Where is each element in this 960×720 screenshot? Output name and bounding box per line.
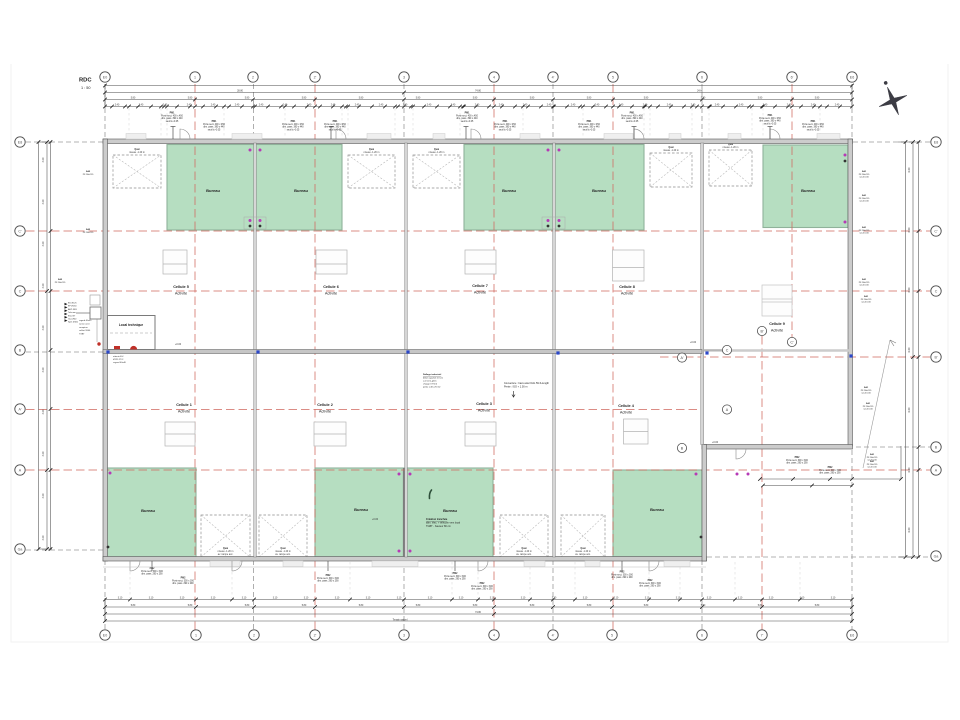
- svg-text:5.80: 5.80: [587, 98, 592, 100]
- svg-text:5.80: 5.80: [302, 605, 307, 607]
- svg-text:E0: E0: [103, 75, 107, 79]
- svg-text:dim. pass. 390 x 440: dim. pass. 390 x 440: [802, 127, 824, 129]
- svg-text:2: 2: [252, 75, 254, 79]
- svg-text:2.40: 2.40: [163, 105, 168, 107]
- svg-text:av. rampe acc.: av. rampe acc.: [575, 553, 591, 556]
- svg-text:PF 90x215: PF 90x215: [859, 230, 870, 232]
- svg-text:5.80: 5.80: [131, 98, 136, 100]
- svg-text:E6: E6: [850, 75, 854, 79]
- svg-text:4': 4': [552, 633, 555, 637]
- svg-text:3.10: 3.10: [397, 598, 402, 600]
- svg-text:6': 6': [791, 75, 794, 79]
- svg-text:28.80: 28.80: [237, 91, 243, 93]
- svg-text:C: C: [935, 289, 938, 293]
- svg-text:seuil à -0.05: seuil à -0.05: [626, 121, 639, 123]
- svg-text:dim. pass. 290 x 290: dim. pass. 290 x 290: [141, 574, 163, 576]
- svg-text:dim. pass. 390 x 440: dim. pass. 390 x 440: [203, 127, 225, 129]
- svg-text:2': 2': [314, 75, 317, 79]
- svg-text:5.80: 5.80: [302, 98, 307, 100]
- svg-text:dim. pass. 290 x 290: dim. pass. 290 x 290: [786, 463, 808, 465]
- svg-text:5.80: 5.80: [245, 605, 250, 607]
- svg-text:6.00: 6.00: [908, 227, 911, 232]
- svg-text:B': B': [760, 330, 763, 334]
- svg-text:C': C': [934, 229, 938, 233]
- svg-text:PF 90x215: PF 90x215: [867, 464, 878, 466]
- svg-text:PF 90x215: PF 90x215: [867, 457, 878, 459]
- svg-text:PM1: PM1: [291, 121, 296, 123]
- svg-text:2.40: 2.40: [451, 105, 456, 107]
- svg-text:5.80: 5.80: [644, 98, 649, 100]
- svg-text:PM1: PM1: [768, 115, 773, 117]
- svg-text:2.40: 2.40: [619, 105, 624, 107]
- svg-text:1 : 50: 1 : 50: [81, 86, 91, 90]
- svg-text:4.20: 4.20: [42, 283, 45, 288]
- svg-text:5.80: 5.80: [530, 605, 535, 607]
- svg-text:béton quartzé 13 cm: béton quartzé 13 cm: [423, 376, 443, 379]
- svg-text:seuil à -0.05: seuil à -0.05: [807, 129, 820, 131]
- svg-text:6.00: 6.00: [908, 527, 911, 532]
- svg-text:charge 3 T/m2: charge 3 T/m2: [423, 382, 438, 385]
- svg-text:74.80: 74.80: [475, 612, 481, 614]
- svg-text:Cellule 4: Cellule 4: [618, 404, 635, 408]
- svg-text:dim. pass. 390 x 440: dim. pass. 390 x 440: [282, 127, 304, 129]
- svg-text:5.80: 5.80: [701, 605, 706, 607]
- svg-text:Ga: Ga: [934, 554, 939, 558]
- svg-text:dim. pass. 290 x 290: dim. pass. 290 x 290: [819, 473, 841, 475]
- svg-text:PM1: PM1: [333, 121, 338, 123]
- svg-text:2.40: 2.40: [595, 105, 600, 107]
- svg-text:Bureau: Bureau: [650, 507, 664, 512]
- svg-text:5.80: 5.80: [473, 98, 478, 100]
- svg-text:2.40: 2.40: [739, 105, 744, 107]
- svg-text:av. rampe acc.: av. rampe acc.: [218, 553, 234, 556]
- svg-text:2.40: 2.40: [283, 105, 288, 107]
- svg-text:2.40: 2.40: [571, 105, 576, 107]
- svg-text:3.10: 3.10: [707, 598, 712, 600]
- svg-text:Porte sect. 400 x 450: Porte sect. 400 x 450: [759, 117, 781, 120]
- svg-text:4.20: 4.20: [42, 493, 45, 498]
- svg-text:Pente : ISO + 1.00 m: Pente : ISO + 1.00 m: [504, 386, 527, 389]
- svg-text:PM1: PM1: [170, 113, 175, 115]
- svg-text:5.80: 5.80: [416, 98, 421, 100]
- svg-text:5.80: 5.80: [587, 605, 592, 607]
- svg-text:Porte sect. 400 x 450: Porte sect. 400 x 450: [494, 123, 516, 126]
- svg-text:5.80: 5.80: [416, 605, 421, 607]
- svg-text:PF 90x215: PF 90x215: [861, 390, 872, 392]
- svg-text:seuil à -0.05: seuil à -0.05: [287, 129, 300, 131]
- svg-text:Porte sect. 300 x 300: Porte sect. 300 x 300: [141, 570, 163, 573]
- svg-text:Activité: Activité: [620, 411, 632, 415]
- svg-text:2.40: 2.40: [811, 105, 816, 107]
- svg-text:Porte sect. 300 x 300: Porte sect. 300 x 300: [317, 577, 339, 580]
- svg-text:seuil 0.00: seuil 0.00: [867, 467, 877, 469]
- svg-text:3.10: 3.10: [428, 598, 433, 600]
- svg-text:AEP Ø63: AEP Ø63: [68, 308, 77, 311]
- svg-text:4: 4: [493, 633, 495, 637]
- svg-text:4.20: 4.20: [42, 241, 45, 246]
- svg-text:Activité: Activité: [175, 292, 187, 296]
- svg-text:Cellule 9: Cellule 9: [769, 322, 785, 326]
- svg-text:2.40: 2.40: [691, 105, 696, 107]
- svg-text:Activité: Activité: [319, 410, 331, 414]
- svg-text:dim. pass. 390 x 440: dim. pass. 390 x 440: [161, 118, 183, 120]
- svg-text:Elec BT: Elec BT: [68, 315, 76, 317]
- svg-text:3.10: 3.10: [118, 598, 123, 600]
- svg-text:3: 3: [403, 633, 405, 637]
- svg-text:Bureau: Bureau: [801, 188, 815, 193]
- svg-text:Porte sect. 400 x 450: Porte sect. 400 x 450: [578, 123, 600, 126]
- svg-text:2.40: 2.40: [379, 105, 384, 107]
- svg-text:PM2: PM2: [326, 575, 331, 577]
- svg-text:2.40: 2.40: [235, 105, 240, 107]
- svg-text:3.10: 3.10: [149, 598, 154, 600]
- svg-text:3.10: 3.10: [645, 598, 650, 600]
- svg-text:Local technique: Local technique: [119, 323, 143, 327]
- svg-text:7': 7': [761, 633, 764, 637]
- svg-text:3: 3: [403, 75, 405, 79]
- svg-text:dim. pass. 290 x 290: dim. pass. 290 x 290: [611, 577, 633, 579]
- svg-text:C: C: [19, 289, 22, 293]
- svg-text:3.10: 3.10: [366, 598, 371, 600]
- svg-text:2.40: 2.40: [523, 105, 528, 107]
- svg-text:niveau -1.20 m: niveau -1.20 m: [129, 151, 145, 154]
- svg-text:Porte sect. 300 x 300: Porte sect. 300 x 300: [786, 459, 808, 462]
- svg-text:Activité: Activité: [478, 409, 490, 413]
- svg-text:2.40: 2.40: [763, 105, 768, 107]
- svg-text:Porte sect. 300 x 300: Porte sect. 300 x 300: [611, 573, 633, 576]
- svg-text:PM2: PM2: [150, 568, 155, 570]
- svg-text:C': C': [790, 341, 794, 345]
- svg-text:5.80: 5.80: [359, 605, 364, 607]
- svg-text:Porte sect. 300 x 300: Porte sect. 300 x 300: [471, 585, 493, 588]
- svg-text:Ø125 PVC: Ø125 PVC: [113, 359, 124, 361]
- svg-text:E0: E0: [103, 633, 107, 637]
- svg-text:E8: E8: [18, 140, 22, 144]
- svg-text:Porte sect. 300 x 300: Porte sect. 300 x 300: [639, 582, 661, 585]
- svg-text:Activité: Activité: [621, 292, 633, 296]
- svg-text:compteur: compteur: [79, 326, 88, 329]
- svg-text:Bureau: Bureau: [141, 508, 155, 513]
- svg-text:5.80: 5.80: [815, 98, 820, 100]
- svg-text:3.10: 3.10: [459, 598, 464, 600]
- svg-text:A': A': [18, 407, 21, 411]
- svg-text:3.10: 3.10: [583, 598, 588, 600]
- svg-text:C': C': [18, 229, 22, 233]
- svg-text:Cellule 1: Cellule 1: [176, 403, 192, 407]
- svg-text:seuil à -0.05: seuil à -0.05: [764, 123, 777, 125]
- svg-text:E8: E8: [934, 140, 938, 144]
- svg-text:2.40: 2.40: [715, 105, 720, 107]
- svg-text:niveau -1.20 m: niveau -1.20 m: [723, 146, 739, 149]
- svg-text:niveau -1.20 m: niveau -1.20 m: [663, 149, 679, 152]
- svg-text:4.20: 4.20: [42, 367, 45, 372]
- svg-text:seuil 0.00: seuil 0.00: [859, 285, 869, 287]
- svg-text:dim. pass. 390 x 440: dim. pass. 390 x 440: [759, 121, 781, 123]
- svg-text:PF 90x215: PF 90x215: [859, 174, 870, 176]
- svg-text:niveau -1.20 m: niveau -1.20 m: [364, 151, 380, 154]
- svg-text:2.40: 2.40: [115, 105, 120, 107]
- svg-text:seuil à -0.05: seuil à -0.05: [499, 129, 512, 131]
- svg-text:5.80: 5.80: [815, 605, 820, 607]
- svg-text:dim. pass. 390 x 440: dim. pass. 390 x 440: [324, 127, 346, 129]
- svg-text:5.80: 5.80: [530, 98, 535, 100]
- svg-text:regard 40x40: regard 40x40: [113, 361, 127, 364]
- svg-text:3.10: 3.10: [676, 598, 681, 600]
- svg-text:seuil à -0.05: seuil à -0.05: [461, 121, 474, 123]
- svg-text:6.00: 6.00: [908, 287, 911, 292]
- svg-text:dim. pass. 290 x 290: dim. pass. 290 x 290: [639, 586, 661, 588]
- svg-text:2.40: 2.40: [835, 105, 840, 107]
- svg-text:dim. pass. 390 x 440: dim. pass. 390 x 440: [494, 127, 516, 129]
- svg-text:3.10: 3.10: [211, 598, 216, 600]
- svg-text:Porte sect. 400 x 450: Porte sect. 400 x 450: [456, 114, 478, 117]
- svg-text:PM2: PM2: [828, 467, 833, 469]
- svg-text:2.40: 2.40: [547, 105, 552, 107]
- svg-text:PM2: PM2: [620, 572, 625, 574]
- svg-text:Activité: Activité: [325, 292, 337, 296]
- svg-text:2.40: 2.40: [187, 105, 192, 107]
- svg-text:E6: E6: [850, 633, 854, 637]
- svg-text:joints sclés 25 m2: joints sclés 25 m2: [422, 385, 441, 388]
- svg-text:2': 2': [314, 633, 317, 637]
- svg-text:5.80: 5.80: [758, 98, 763, 100]
- svg-text:3.10: 3.10: [490, 598, 495, 600]
- svg-text:PF 90x215: PF 90x215: [859, 198, 870, 200]
- svg-text:seuil à -0.05: seuil à -0.05: [329, 129, 342, 131]
- svg-text:PF 90x215: PF 90x215: [859, 282, 870, 284]
- svg-text:1: 1: [195, 633, 197, 637]
- svg-text:3.10: 3.10: [521, 598, 526, 600]
- svg-text:2.40: 2.40: [403, 105, 408, 107]
- svg-text:vanne arret: vanne arret: [79, 322, 90, 325]
- svg-text:seuil à -0.05: seuil à -0.05: [166, 121, 179, 123]
- svg-text:attente EU: attente EU: [113, 355, 124, 358]
- svg-text:2.40: 2.40: [355, 105, 360, 107]
- svg-text:PM2: PM2: [795, 457, 800, 459]
- svg-text:4.20: 4.20: [42, 409, 45, 414]
- svg-text:Bureau: Bureau: [294, 188, 308, 193]
- svg-text:2.40: 2.40: [475, 105, 480, 107]
- svg-text:dim. pass. 290 x 290: dim. pass. 290 x 290: [172, 583, 194, 585]
- svg-text:Cellule 7: Cellule 7: [472, 284, 488, 288]
- svg-text:Dallage industriel: Dallage industriel: [423, 373, 442, 376]
- svg-text:seuil à -0.05: seuil à -0.05: [208, 129, 221, 131]
- svg-text:Activité: Activité: [771, 329, 783, 333]
- svg-text:Porte sect. 300 x 300: Porte sect. 300 x 300: [444, 575, 466, 578]
- svg-text:TGBT - hauteur 80 cm: TGBT - hauteur 80 cm: [426, 525, 451, 528]
- svg-text:5: 5: [612, 75, 614, 79]
- svg-text:av. rampe acc.: av. rampe acc.: [516, 553, 532, 556]
- svg-text:3.10: 3.10: [614, 598, 619, 600]
- svg-text:Cellule 6: Cellule 6: [323, 285, 339, 289]
- svg-text:3.10: 3.10: [769, 598, 774, 600]
- svg-text:6.00: 6.00: [908, 467, 911, 472]
- svg-text:PM1: PM1: [587, 121, 592, 123]
- svg-text:RDC: RDC: [79, 78, 92, 84]
- svg-text:3.10: 3.10: [552, 598, 557, 600]
- svg-text:4: 4: [493, 75, 495, 79]
- svg-text:Cellule 2: Cellule 2: [317, 403, 333, 407]
- svg-text:PM1: PM1: [630, 113, 635, 115]
- svg-text:2: 2: [253, 633, 255, 637]
- svg-text:B': B': [934, 355, 937, 359]
- svg-text:6.00: 6.00: [908, 167, 911, 172]
- svg-text:dim. pass. 290 x 290: dim. pass. 290 x 290: [317, 581, 339, 583]
- svg-text:4.20: 4.20: [42, 199, 45, 204]
- svg-text:2.40: 2.40: [667, 105, 672, 107]
- svg-text:dim. pass. 390 x 440: dim. pass. 390 x 440: [456, 118, 478, 120]
- svg-text:PM1: PM1: [811, 121, 816, 123]
- svg-text:Cellule 8: Cellule 8: [619, 285, 635, 289]
- svg-text:PM1: PM1: [503, 121, 508, 123]
- svg-text:PM1: PM1: [212, 121, 217, 123]
- svg-text:Ga: Ga: [18, 547, 23, 551]
- svg-text:seuil à -0.05: seuil à -0.05: [583, 129, 596, 131]
- svg-text:seuil 0.00: seuil 0.00: [859, 201, 869, 203]
- svg-text:6: 6: [701, 633, 703, 637]
- svg-text:PM2: PM2: [480, 583, 485, 585]
- svg-text:Bureau: Bureau: [502, 188, 516, 193]
- svg-text:seuil 0.00: seuil 0.00: [861, 393, 871, 395]
- svg-text:4.20: 4.20: [42, 157, 45, 162]
- svg-text:dim. pass. 390 x 440: dim. pass. 390 x 440: [621, 118, 643, 120]
- svg-text:Porte sect. 400 x 450: Porte sect. 400 x 450: [161, 114, 183, 117]
- svg-text:regard 40x40: regard 40x40: [79, 319, 92, 322]
- svg-text:5.80: 5.80: [131, 605, 136, 607]
- svg-text:3.10: 3.10: [800, 598, 805, 600]
- svg-text:A': A': [680, 356, 683, 360]
- svg-text:EP Ø160: EP Ø160: [68, 306, 77, 308]
- svg-text:2.40: 2.40: [427, 105, 432, 107]
- svg-text:seuil 0.00: seuil 0.00: [859, 233, 869, 235]
- svg-text:Gaz Ø40: Gaz Ø40: [68, 319, 77, 321]
- svg-text:Porte sect. 300 x 300: Porte sect. 300 x 300: [172, 579, 194, 582]
- svg-text:dim. pass. 290 x 290: dim. pass. 290 x 290: [444, 579, 466, 581]
- svg-text:Porte sect. 400 x 450: Porte sect. 400 x 450: [203, 123, 225, 126]
- svg-text:coffret S500: coffret S500: [79, 329, 91, 332]
- svg-text:Bureau: Bureau: [443, 508, 457, 513]
- svg-text:6.00: 6.00: [908, 407, 911, 412]
- svg-text:4.20: 4.20: [42, 535, 45, 540]
- svg-text:74.80: 74.80: [475, 91, 481, 93]
- svg-text:PM2: PM2: [181, 578, 186, 580]
- svg-text:Cellule 5: Cellule 5: [173, 285, 189, 289]
- svg-text:seuil 0.00: seuil 0.00: [859, 177, 869, 179]
- svg-text:+0.00: +0.00: [372, 518, 379, 521]
- svg-text:PM2: PM2: [453, 573, 458, 575]
- svg-text:dim. pass. 390 x 440: dim. pass. 390 x 440: [578, 127, 600, 129]
- svg-text:PF 90x215: PF 90x215: [863, 406, 874, 408]
- svg-text:1: 1: [194, 75, 196, 79]
- svg-text:5.80: 5.80: [188, 605, 193, 607]
- svg-text:4.20: 4.20: [42, 451, 45, 456]
- svg-text:2.40: 2.40: [787, 105, 792, 107]
- svg-text:3.10: 3.10: [335, 598, 340, 600]
- svg-text:2.40: 2.40: [211, 105, 216, 107]
- svg-text:C: C: [726, 349, 729, 353]
- svg-text:2.40: 2.40: [307, 105, 312, 107]
- svg-text:2.40: 2.40: [499, 105, 504, 107]
- svg-text:Cellule 3: Cellule 3: [476, 402, 492, 406]
- svg-text:24.60: 24.60: [697, 91, 703, 93]
- svg-text:5.80: 5.80: [473, 605, 478, 607]
- svg-text:niveau -1.20 m: niveau -1.20 m: [429, 151, 445, 154]
- svg-text:PF 90x215: PF 90x215: [83, 174, 94, 176]
- svg-text:dim. pass. 290 x 290: dim. pass. 290 x 290: [471, 589, 493, 591]
- svg-text:5.80: 5.80: [245, 98, 250, 100]
- svg-text:Telecom: Telecom: [68, 312, 76, 314]
- svg-text:Bureau: Bureau: [592, 188, 606, 193]
- svg-text:3.10: 3.10: [180, 598, 185, 600]
- svg-text:5.80: 5.80: [359, 98, 364, 100]
- svg-text:PM2: PM2: [648, 580, 653, 582]
- svg-text:3.10: 3.10: [304, 598, 309, 600]
- svg-text:3.10: 3.10: [242, 598, 247, 600]
- svg-text:seuil 0.00: seuil 0.00: [861, 302, 871, 304]
- svg-text:+0.00: +0.00: [712, 441, 719, 444]
- svg-text:4': 4': [552, 75, 555, 79]
- svg-text:5.80: 5.80: [188, 98, 193, 100]
- svg-text:2.40: 2.40: [331, 105, 336, 107]
- svg-text:+0.00: +0.00: [175, 343, 182, 346]
- svg-text:EU Ø125: EU Ø125: [68, 303, 77, 305]
- svg-text:Terrain naturel: Terrain naturel: [393, 619, 408, 622]
- svg-text:5.80: 5.80: [758, 605, 763, 607]
- svg-text:+0.00: +0.00: [690, 341, 697, 344]
- svg-text:Porte sect. 400 x 450: Porte sect. 400 x 450: [282, 123, 304, 126]
- svg-text:Bureau: Bureau: [206, 188, 220, 193]
- svg-text:3.10: 3.10: [831, 598, 836, 600]
- svg-text:av. rampe acc.: av. rampe acc.: [275, 553, 291, 556]
- svg-text:seuil 0.00: seuil 0.00: [863, 409, 873, 411]
- svg-text:TGBT: TGBT: [79, 334, 85, 336]
- svg-text:Porte sect. 300 x 300: Porte sect. 300 x 300: [819, 469, 841, 472]
- svg-text:5.80: 5.80: [701, 98, 706, 100]
- svg-text:Porte sect. 400 x 450: Porte sect. 400 x 450: [324, 123, 346, 126]
- svg-text:Porte sect. 400 x 450: Porte sect. 400 x 450: [621, 114, 643, 117]
- svg-text:Sprk Ø100: Sprk Ø100: [68, 321, 79, 324]
- svg-text:PM1: PM1: [465, 113, 470, 115]
- svg-text:Activité: Activité: [178, 410, 190, 414]
- svg-text:3.10: 3.10: [273, 598, 278, 600]
- svg-text:2.40: 2.40: [259, 105, 264, 107]
- svg-text:6.00: 6.00: [908, 347, 911, 352]
- svg-text:PF 90x215: PF 90x215: [55, 282, 66, 284]
- svg-text:3.10: 3.10: [738, 598, 743, 600]
- svg-text:PF 90x215: PF 90x215: [861, 299, 872, 301]
- svg-text:sur terre-plein: sur terre-plein: [423, 379, 437, 382]
- svg-text:PF 90x215: PF 90x215: [83, 232, 94, 234]
- svg-text:5: 5: [611, 633, 613, 637]
- svg-text:Activité: Activité: [474, 291, 486, 295]
- svg-text:5.80: 5.80: [644, 605, 649, 607]
- svg-text:6: 6: [701, 75, 703, 79]
- svg-text:2.40: 2.40: [139, 105, 144, 107]
- svg-text:4.20: 4.20: [42, 325, 45, 330]
- svg-text:2.40: 2.40: [643, 105, 648, 107]
- svg-text:Porte sect. 400 x 450: Porte sect. 400 x 450: [802, 123, 824, 126]
- svg-text:Bureau: Bureau: [354, 507, 368, 512]
